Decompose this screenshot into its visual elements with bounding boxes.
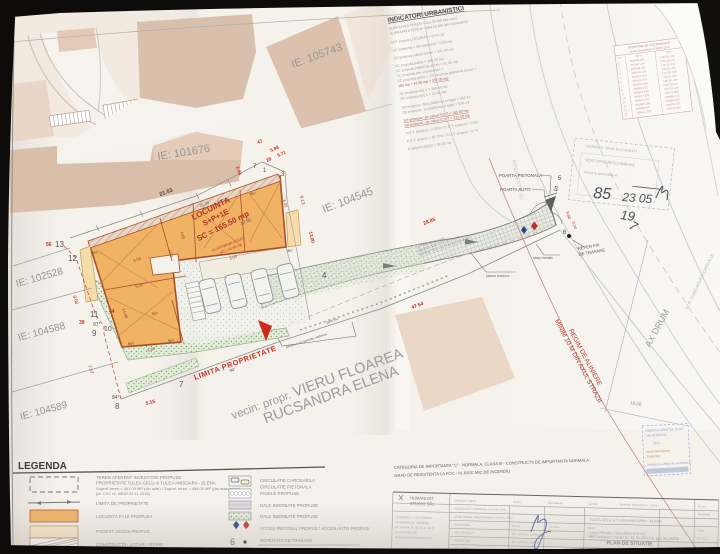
svg-text:CIRCULATIE PIETONALA: CIRCULATIE PIETONALA [260,485,312,490]
svg-text:56: 56 [46,242,52,248]
svg-text:POARTA PIETONALA: POARTA PIETONALA [499,173,542,178]
svg-text:7: 7 [179,380,184,389]
svg-text:11: 11 [90,310,99,319]
svg-text:90°: 90° [287,248,293,253]
svg-text:POARTA AUTO: POARTA AUTO [500,187,531,192]
svg-text:4: 4 [322,271,327,280]
svg-text:44: 44 [109,309,115,315]
svg-text:12: 12 [68,254,77,263]
svg-text:8: 8 [115,402,120,411]
svg-text:39: 39 [79,320,85,326]
svg-text:stalp metalic: stalp metalic [533,256,553,260]
svg-text:23 05: 23 05 [621,190,653,206]
svg-text:CIRCULATIE CAROSABILA: CIRCULATIE CAROSABILA [260,478,315,483]
svg-text:3512: 3512 [653,441,661,445]
svg-text:97°: 97° [93,322,101,328]
svg-text:TEREN AFERENT INVESTITIEI PROP: TEREN AFERENT INVESTITIEI PROPUSE [96,475,181,480]
svg-text:90°: 90° [250,191,256,196]
svg-text:PAVELE PROPUSE: PAVELE PROPUSE [260,491,299,496]
svg-text:90°: 90° [128,341,134,346]
svg-text:Pct: Pct [617,56,622,60]
svg-text:(cf. CVC nr. 4902/ 02.11.2016): (cf. CVC nr. 4902/ 02.11.2016) [96,491,151,496]
svg-text:13: 13 [55,240,64,249]
svg-text:PROPRIETATE TULEA GELU si TULE: PROPRIETATE TULEA GELU si TULEA ANISOARA… [96,481,216,486]
svg-text:10: 10 [104,326,112,333]
svg-text:85: 85 [593,185,612,203]
svg-text:84°: 84° [112,395,120,401]
svg-text:90°: 90° [168,338,174,343]
svg-text:ZANFIRA: ZANFIRA [647,454,662,459]
svg-text:90°: 90° [92,250,98,255]
svg-text:LEGENDA: LEGENDA [18,461,67,472]
svg-text:panou bordura: panou bordura [486,274,509,278]
svg-text:9: 9 [92,329,97,338]
svg-text:90°: 90° [152,311,158,316]
